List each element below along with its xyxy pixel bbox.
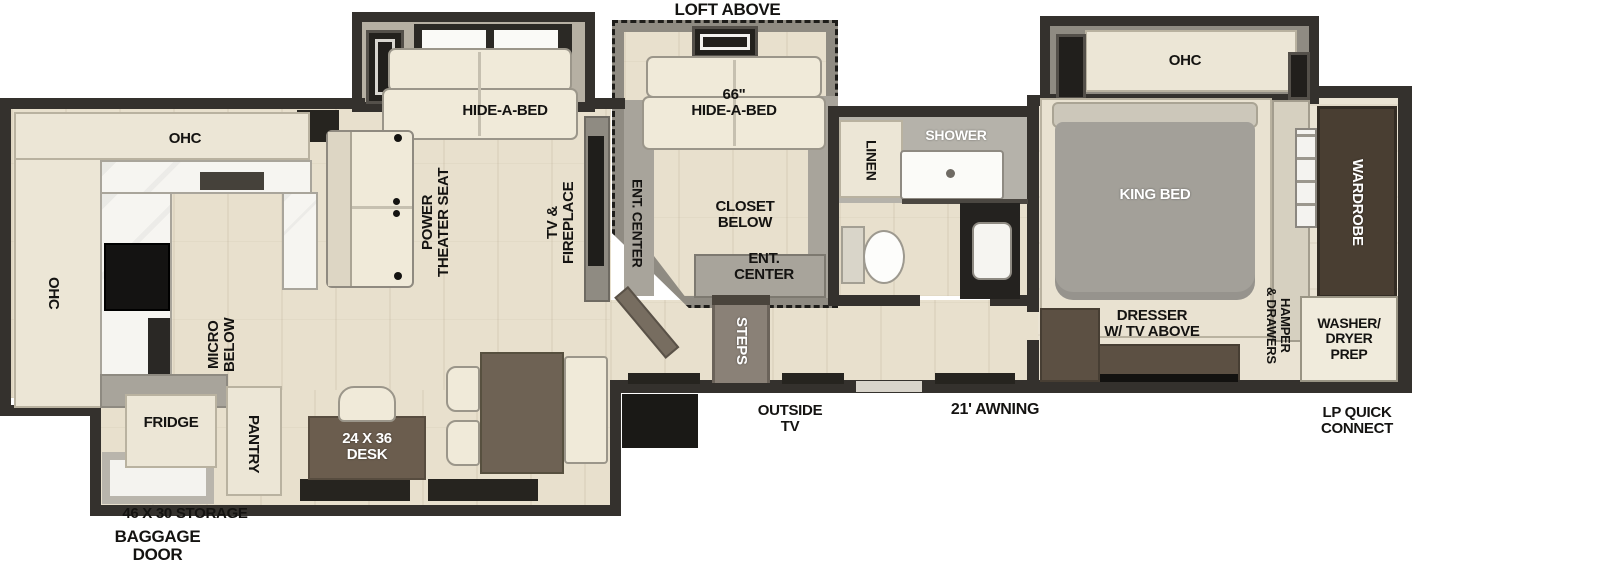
wall-bath-top [828,106,1039,117]
toilet-bowl [863,230,905,284]
theater-seat-divider [352,206,412,209]
loft-above-label: LOFT ABOVE [635,0,820,20]
tv-fireplace-label: TV & FIREPLACE [536,150,586,295]
window-entry-3 [935,373,1015,384]
steps-label: STEPS [726,302,756,380]
dinette-table [480,352,564,474]
fridge-label: FRIDGE [130,412,212,434]
power-theater-seat-label: POWER THEATER SEAT [410,150,462,295]
front-window-grid [1295,128,1317,228]
rv-floorplan: HIDE-A-BED 66" HIDE-A-BED ENT. CENTER CL… [0,0,1600,572]
wall-bedroom-divider [1027,106,1039,312]
range-hood [200,172,264,190]
wall-bath-left [828,106,839,306]
tv-fireplace-screen [588,136,604,266]
ent-center-label: ENT. CENTER [704,246,824,288]
wall-top-mid [585,98,625,109]
awning-label: 21' AWNING [930,399,1060,421]
dinette-chair-2 [446,420,480,466]
wall-lower-right [610,385,621,516]
wall-top-left [0,98,365,109]
toilet-tank [841,226,865,284]
hide-a-bed-label: HIDE-A-BED [430,100,580,122]
wall-front-right [1398,86,1412,393]
theater-seat-backrest [328,132,352,286]
dresser-tv [1098,374,1238,382]
bedroom-ohc-label: OHC [1150,50,1220,72]
outside-tv-label: OUTSIDE TV [735,398,845,440]
kitchen-ohc-left-label: OHC [40,260,66,326]
hamper-drawers-label: HAMPER & DRAWERS [1252,263,1304,387]
cupholder-3 [393,210,400,217]
entry-door [856,381,922,392]
hide-a-bed-66-label: 66" HIDE-A-BED [654,80,814,126]
storage-label: 46 X 30 STORAGE [85,503,285,525]
cupholder-4 [394,272,402,280]
washer-dryer-label: WASHER/ DRYER PREP [1304,304,1394,374]
wall-bedroom-top-right [1308,86,1410,98]
kitchen-ohc-top-label: OHC [150,128,220,150]
window-kitchen-1 [300,479,410,501]
bath-sink [972,222,1012,280]
ent-center-side-label: ENT. CENTER [620,148,654,298]
dresser-label: DRESSER W/ TV ABOVE [1082,302,1222,346]
dinette-bench [564,356,608,464]
loft-window [692,26,758,58]
outside-tv [622,394,698,448]
desk-label: 24 X 36 DESK [318,424,416,470]
linen-label: LINEN [858,128,884,192]
desk-chair [338,386,396,422]
bedroom-window-right [1288,52,1310,100]
shower-label: SHOWER [900,126,1012,146]
cooktop [104,243,170,311]
bedroom-entry-desk [1040,308,1100,382]
cupholder-1 [394,134,402,142]
lp-quick-connect-label: LP QUICK CONNECT [1297,399,1417,443]
cupholder-2 [393,198,400,205]
kitchen-peninsula [282,192,318,290]
dinette-chair-1 [446,366,480,412]
window-entry-1 [628,373,700,384]
oven-below [148,318,170,374]
wardrobe-label: WARDROBE [1340,126,1374,278]
pantry-label: PANTRY [240,398,266,490]
wall-left [0,98,11,416]
shower-drain [946,169,955,178]
micro-below-label: MICRO BELOW [198,296,246,394]
king-bed [1055,122,1255,300]
window-kitchen-2 [428,479,538,501]
king-bed-label: KING BED [1090,184,1220,206]
window-entry-2 [782,373,844,384]
sofa-cushion-divider [478,52,481,136]
closet-below-label: CLOSET BELOW [690,194,800,236]
bedroom-window-left [1056,34,1086,100]
baggage-door-label: BAGGAGE DOOR [95,524,220,568]
wall-bath-bottom-left [828,295,920,306]
wall-lower-left [90,405,101,516]
